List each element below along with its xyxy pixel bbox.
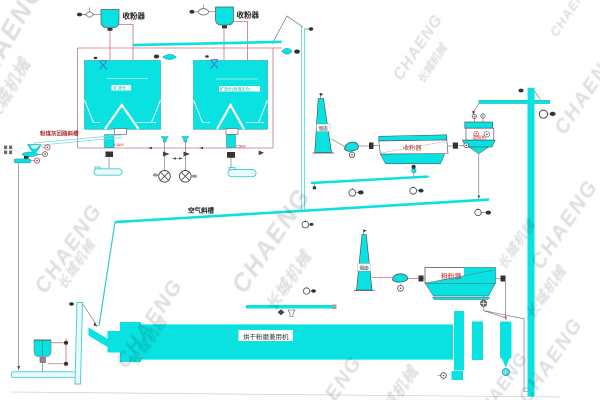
svg-text:收粉器: 收粉器 xyxy=(237,10,260,20)
svg-text:选粉机: 选粉机 xyxy=(473,134,487,141)
svg-text:7.5kW: 7.5kW xyxy=(236,145,247,149)
svg-text:烟囱: 烟囱 xyxy=(319,125,329,132)
svg-text:4.5kW: 4.5kW xyxy=(114,143,125,147)
svg-text:空气斜槽: 空气斜槽 xyxy=(188,206,215,215)
svg-text:烘干粉磨兼用机: 烘干粉磨兼用机 xyxy=(243,332,289,341)
svg-text:矿渣仓(粉煤灰仓): 矿渣仓(粉煤灰仓) xyxy=(220,85,251,91)
svg-text:粗粉器: 粗粉器 xyxy=(441,272,462,281)
svg-text:矿渣仓: 矿渣仓 xyxy=(114,85,127,92)
svg-text:粉煤灰回路斜槽: 粉煤灰回路斜槽 xyxy=(40,130,79,138)
svg-text:烟囱: 烟囱 xyxy=(360,265,370,272)
svg-text:收粉器: 收粉器 xyxy=(123,11,146,21)
svg-text:收粉器: 收粉器 xyxy=(403,144,422,152)
